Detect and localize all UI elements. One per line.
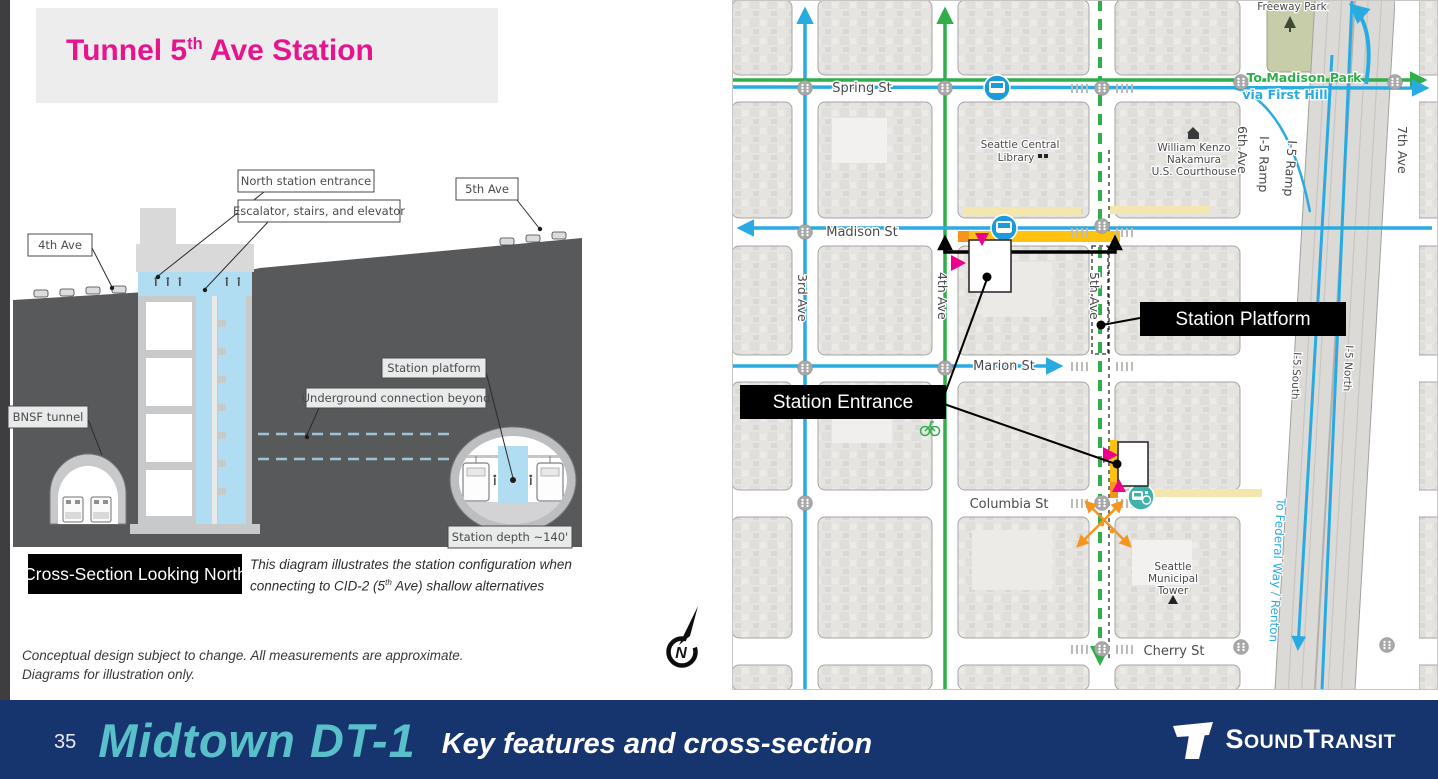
callout-station-entrance: Station Entrance	[773, 392, 913, 413]
slide: Tunnel 5th Ave Station	[0, 0, 1438, 779]
label-bnsf-tunnel: BNSF tunnel	[13, 410, 84, 424]
7th-ave-street	[1395, 0, 1419, 690]
poi-tower-line1: Seattle	[1154, 561, 1191, 573]
caption-cross-section: Cross-Section Looking North	[23, 564, 247, 584]
footer-subtitle: Key features and cross-section	[442, 718, 872, 761]
poi-tower-line3: Tower	[1157, 585, 1189, 597]
station-area-map: Spring St Madison St Marion St Columbia …	[732, 0, 1438, 690]
poi-library-line2: Library	[998, 152, 1035, 164]
slide-title-box: Tunnel 5th Ave Station	[36, 8, 498, 103]
poi-courthouse-line2: Nakamura	[1167, 154, 1221, 166]
street-label-marion: Marion St	[973, 359, 1035, 374]
north-arrow-compass: N	[652, 600, 712, 676]
street-label-7th-ave: 7th Ave	[1395, 126, 1410, 174]
poi-tower-line2: Municipal	[1148, 573, 1198, 585]
poi-courthouse-line3: U.S. Courthouse	[1152, 166, 1237, 178]
callout-station-platform: Station Platform	[1175, 309, 1310, 330]
street-label-5th-ave: 5th Ave	[1087, 272, 1102, 320]
sound-transit-logo: SOUNDTRANSIT	[1171, 717, 1396, 763]
poi-courthouse-line1: William Kenzo	[1157, 142, 1230, 154]
page-title: Tunnel 5th Ave Station	[66, 34, 374, 68]
street-label-cherry: Cherry St	[1144, 644, 1205, 659]
station-shaft	[130, 208, 260, 534]
label-north-entrance: North station entrance	[241, 174, 371, 188]
street-label-6th-ave: 6th Ave	[1235, 126, 1250, 174]
label-i5-south: I-5 South	[1289, 352, 1303, 400]
poi-library-line1: Seattle Central	[981, 139, 1060, 151]
footer-route-name: Midtown DT-1	[98, 711, 415, 768]
poi-freeway-park: Freeway Park	[1257, 1, 1327, 13]
page-number: 35	[54, 725, 76, 754]
label-escalator: Escalator, stairs, and elevator	[233, 204, 405, 218]
footer-bar: 35 Midtown DT-1 Key features and cross-s…	[0, 700, 1438, 779]
sound-transit-logo-mark	[1171, 717, 1217, 763]
street-label-spring: Spring St	[832, 81, 891, 96]
diagram-note: This diagram illustrates the station con…	[250, 556, 680, 596]
street-label-3rd-ave: 3rd Ave	[795, 274, 810, 322]
street-label-madison: Madison St	[826, 225, 898, 240]
sound-transit-logo-text: SOUNDTRANSIT	[1225, 724, 1396, 755]
label-station-platform: Station platform	[387, 361, 480, 375]
street-label-i5-ramp-a: I-5 Ramp	[1256, 136, 1272, 193]
compass-n-label: N	[675, 645, 687, 662]
disclaimer: Conceptual design subject to change. All…	[22, 646, 464, 684]
direction-madison-park: To Madison Park	[1247, 70, 1363, 85]
street-label-columbia: Columbia St	[970, 497, 1049, 512]
label-station-depth: Station depth ~140'	[452, 530, 568, 544]
label-i5-north: I-5 North	[1341, 345, 1355, 392]
street-label-4th-ave: 4th Ave	[935, 272, 950, 320]
bus-stop-icon-spring	[984, 75, 1010, 101]
bus-stop-icon-madison	[991, 215, 1017, 241]
label-5th-ave: 5th Ave	[465, 182, 509, 196]
accessible-transit-icon-columbia	[1128, 484, 1154, 510]
direction-first-hill: via First Hill	[1242, 87, 1327, 102]
label-4th-ave: 4th Ave	[38, 238, 82, 252]
label-underground-connection: Underground connection beyond	[302, 391, 491, 405]
